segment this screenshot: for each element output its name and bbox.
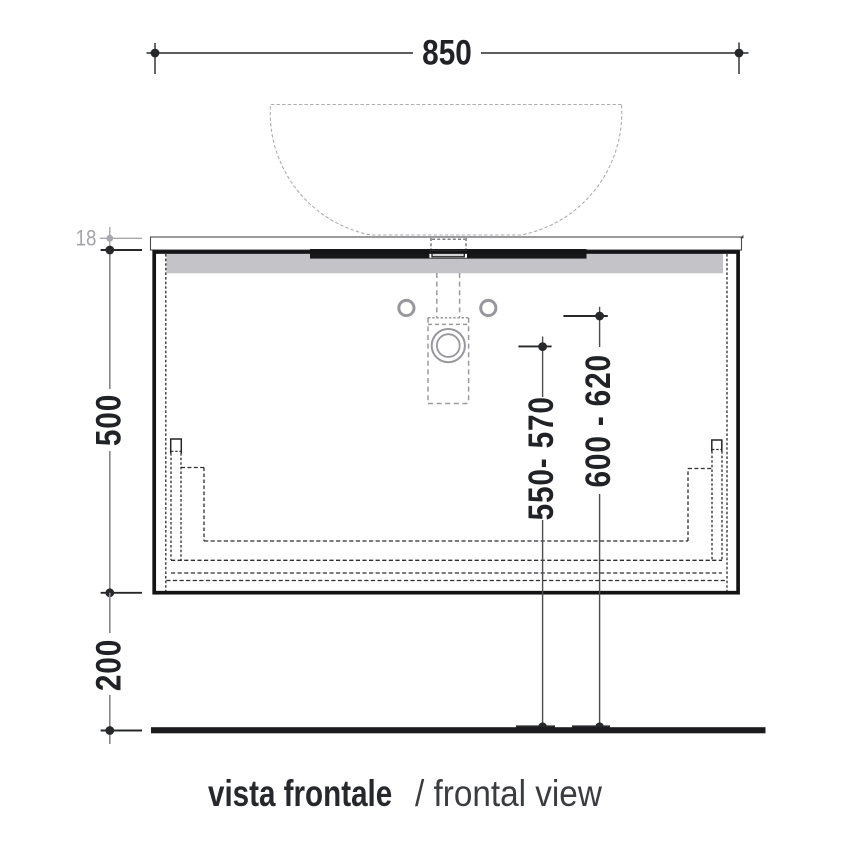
svg-text:vista frontale: vista frontale: [208, 774, 392, 815]
svg-text:200: 200: [89, 639, 128, 691]
svg-text:550- 570: 550- 570: [522, 396, 561, 520]
svg-text:/ frontal view: / frontal view: [415, 773, 602, 814]
svg-text:500: 500: [89, 394, 128, 446]
svg-text:600 - 620: 600 - 620: [579, 354, 618, 487]
svg-text:850: 850: [422, 33, 472, 72]
svg-text:18: 18: [76, 227, 97, 251]
